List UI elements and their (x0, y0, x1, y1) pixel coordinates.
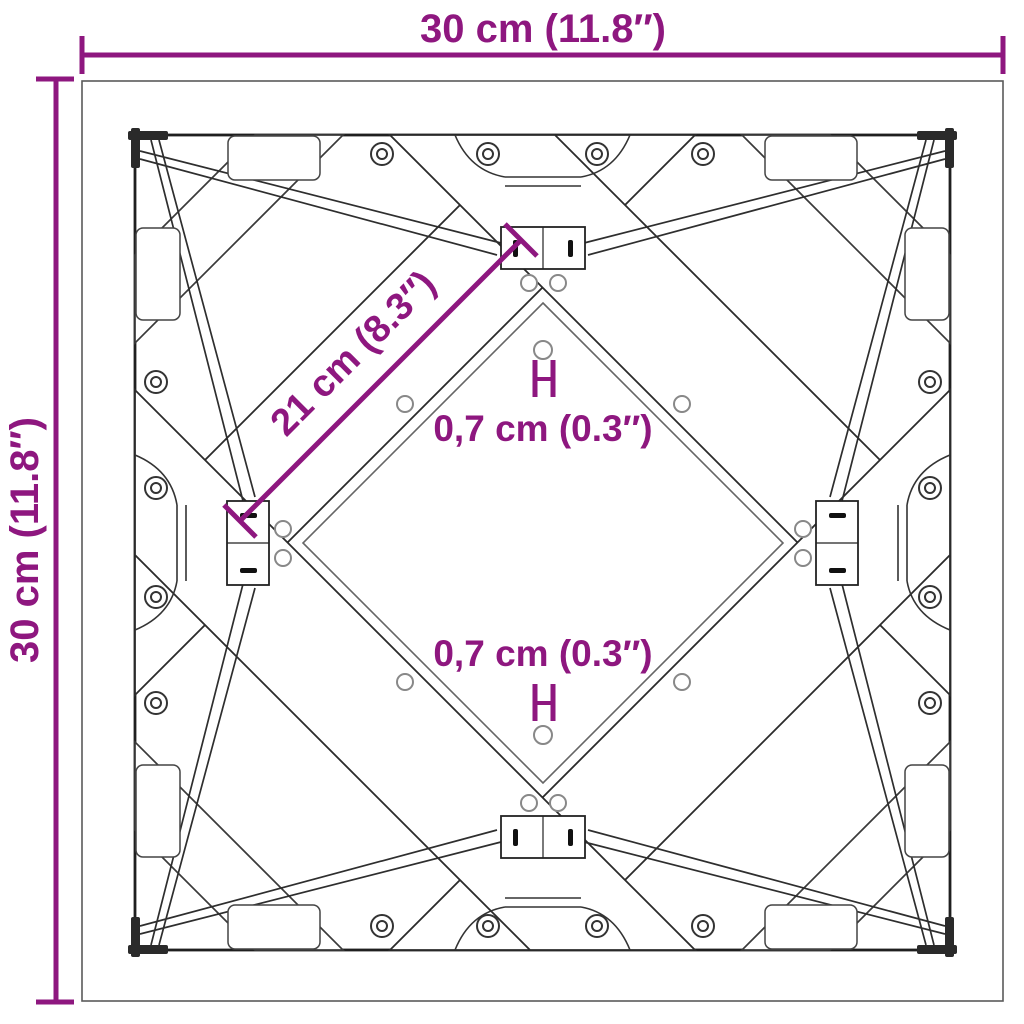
slot-mark (829, 513, 846, 518)
screw-hole (151, 377, 161, 387)
pilot-hole (397, 396, 413, 412)
corner-clamp (128, 945, 168, 954)
edge-plate (136, 228, 180, 320)
corner-clamp (917, 945, 957, 954)
screw-hole (925, 483, 935, 493)
screw-hole (925, 698, 935, 708)
pilot-hole (674, 674, 690, 690)
pilot-hole (275, 521, 291, 537)
edge-plate (228, 905, 320, 949)
corner-clamp (917, 131, 957, 140)
screw-hole (592, 149, 602, 159)
slot-mark (829, 568, 846, 573)
corner-clamp (128, 131, 168, 140)
pilot-hole (521, 795, 537, 811)
screw-hole (592, 921, 602, 931)
edge-plate (136, 765, 180, 857)
height-dimension-label: 30 cm (11.8″) (3, 417, 47, 663)
pilot-hole (550, 275, 566, 291)
pilot-hole (795, 521, 811, 537)
callout-hole-bottom (534, 726, 552, 744)
pilot-hole (275, 550, 291, 566)
screw-hole (483, 921, 493, 931)
screw-hole (377, 149, 387, 159)
screw-hole (698, 149, 708, 159)
dimension-diagram: 30 cm (11.8″) 30 cm (11.8″) 21 cm (8.3″)… (0, 0, 1024, 1024)
width-dimension-label: 30 cm (11.8″) (420, 7, 666, 51)
pilot-hole (397, 674, 413, 690)
screw-hole (698, 921, 708, 931)
diagram-canvas: 30 cm (11.8″) 30 cm (11.8″) 21 cm (8.3″)… (0, 0, 1024, 1024)
hole-diameter-label-top: 0,7 cm (0.3″) (433, 408, 652, 449)
pilot-hole (521, 275, 537, 291)
slot-mark (568, 240, 573, 257)
callout-hole-top (534, 341, 552, 359)
screw-hole (151, 592, 161, 602)
screw-hole (483, 149, 493, 159)
slot-mark (568, 829, 573, 846)
screw-hole (925, 592, 935, 602)
slot-mark (513, 829, 518, 846)
edge-plate (905, 765, 949, 857)
edge-plate (905, 228, 949, 320)
screw-hole (377, 921, 387, 931)
edge-plate (765, 136, 857, 180)
pilot-hole (550, 795, 566, 811)
screw-hole (925, 377, 935, 387)
slot-mark (240, 568, 257, 573)
screw-hole (151, 698, 161, 708)
edge-plate (228, 136, 320, 180)
screw-hole (151, 483, 161, 493)
pilot-hole (795, 550, 811, 566)
hole-diameter-label-bottom: 0,7 cm (0.3″) (433, 633, 652, 674)
pilot-hole (674, 396, 690, 412)
edge-plate (765, 905, 857, 949)
